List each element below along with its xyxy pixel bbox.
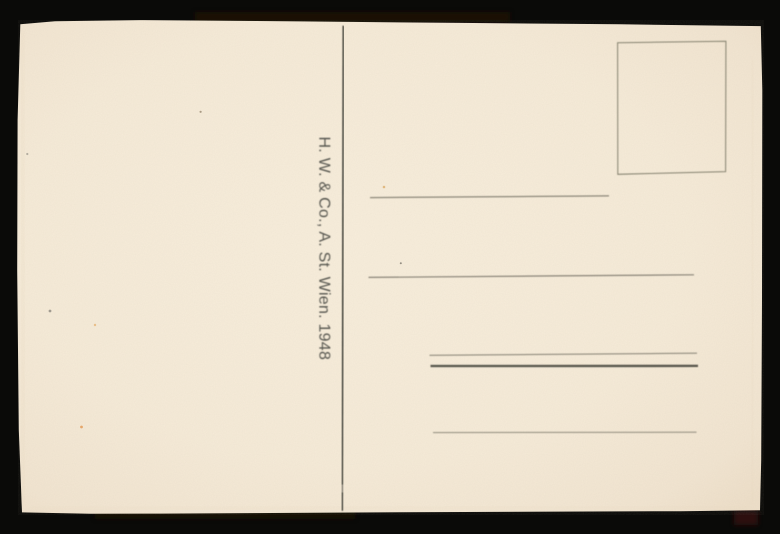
svg-text:H. W. & Co., A. St. Wien. 1948: H. W. & Co., A. St. Wien. 1948 — [315, 137, 332, 361]
